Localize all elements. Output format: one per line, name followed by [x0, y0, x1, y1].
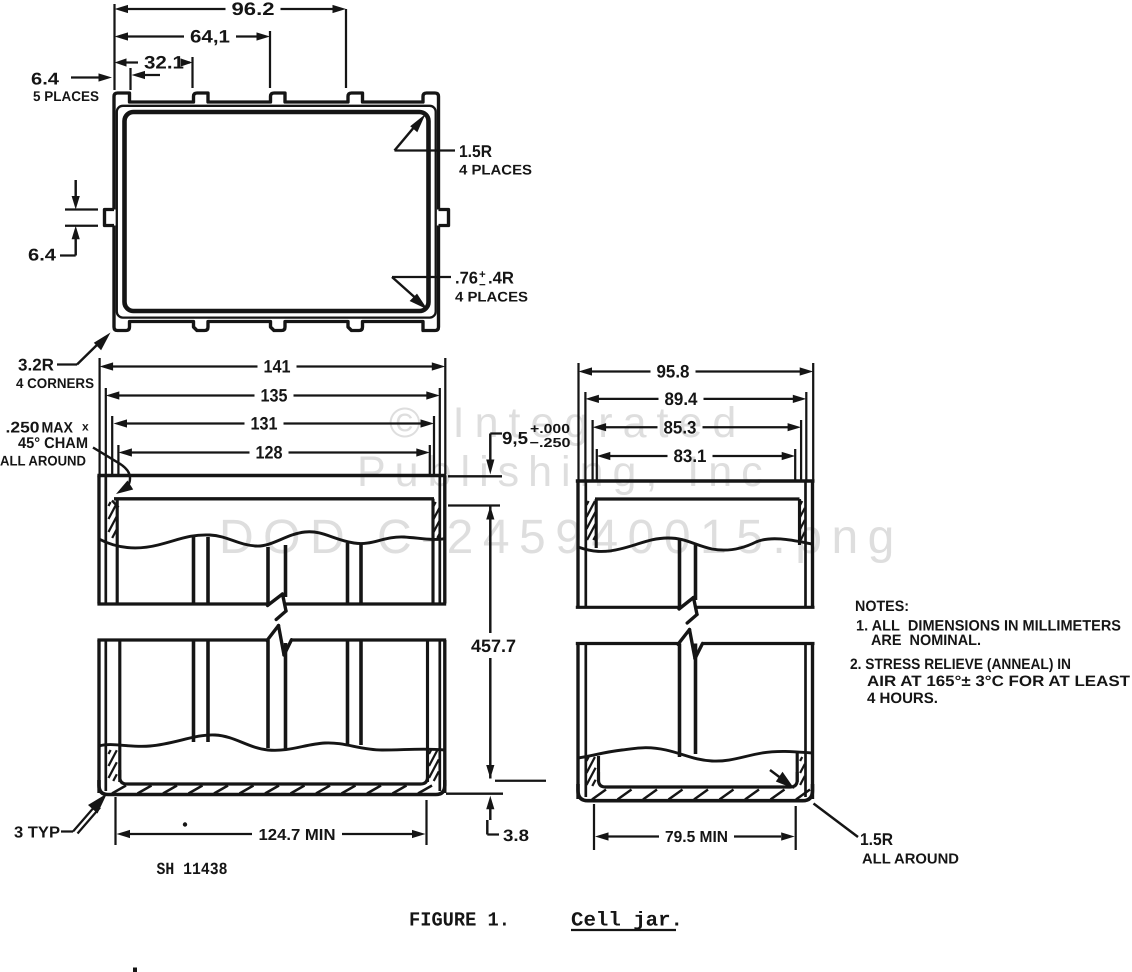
svg-text:85.3: 85.3 [664, 417, 697, 437]
svg-text:4 PLACES: 4 PLACES [459, 162, 532, 178]
svg-text:128: 128 [256, 443, 283, 463]
svg-text:.4R: .4R [488, 269, 514, 288]
svg-text:4 HOURS.: 4 HOURS. [867, 690, 938, 707]
svg-text:.76: .76 [455, 269, 478, 288]
svg-text:96.2: 96.2 [232, 0, 275, 19]
svg-text:135: 135 [261, 386, 288, 406]
svg-text:141: 141 [264, 357, 291, 377]
svg-text:3.2R: 3.2R [18, 356, 54, 375]
svg-text:3.8: 3.8 [503, 827, 529, 845]
svg-text:2. STRESS RELIEVE (ANNEAL) IN: 2. STRESS RELIEVE (ANNEAL) IN [850, 656, 1071, 673]
svg-text:AIR AT 165°± 3°C FOR AT LEAST: AIR AT 165°± 3°C FOR AT LEAST [867, 673, 1130, 690]
svg-text:NOTES:: NOTES: [855, 598, 909, 615]
svg-text:.250: .250 [6, 420, 40, 437]
svg-text:6.4: 6.4 [28, 246, 57, 265]
svg-text:−.250: −.250 [530, 435, 571, 450]
svg-text:ARE NOMINAL.: ARE NOMINAL. [871, 632, 981, 649]
svg-text:64,1: 64,1 [190, 27, 230, 47]
svg-text:457.7: 457.7 [471, 636, 516, 656]
svg-text:x: x [82, 420, 89, 434]
svg-text:5 PLACES: 5 PLACES [33, 88, 99, 104]
svg-text:ALL AROUND: ALL AROUND [0, 453, 86, 469]
svg-text:1.5R: 1.5R [459, 142, 492, 161]
svg-text:MAX: MAX [42, 420, 74, 437]
svg-text:6.4: 6.4 [31, 70, 60, 89]
svg-text:83.1: 83.1 [674, 446, 707, 466]
svg-text:9,5: 9,5 [502, 428, 528, 448]
svg-text:4 CORNERS: 4 CORNERS [16, 375, 94, 391]
svg-text:1.5R: 1.5R [860, 830, 893, 849]
svg-text:+.000: +.000 [530, 421, 570, 436]
svg-text:45° CHAM: 45° CHAM [18, 435, 88, 452]
svg-text:ALL AROUND: ALL AROUND [862, 852, 959, 868]
svg-text:131: 131 [251, 414, 278, 434]
svg-text:89.4: 89.4 [665, 389, 698, 409]
svg-text:SH 11438: SH 11438 [157, 861, 228, 880]
svg-text:79.5 MIN: 79.5 MIN [665, 829, 728, 846]
svg-text:95.8: 95.8 [657, 362, 690, 382]
svg-text:FIGURE 1.: FIGURE 1. [409, 910, 510, 933]
svg-text:3 TYP: 3 TYP [14, 825, 60, 842]
svg-text:4 PLACES: 4 PLACES [455, 289, 528, 305]
svg-text:124.7 MIN: 124.7 MIN [259, 827, 336, 844]
svg-text:32.1: 32.1 [144, 53, 184, 73]
